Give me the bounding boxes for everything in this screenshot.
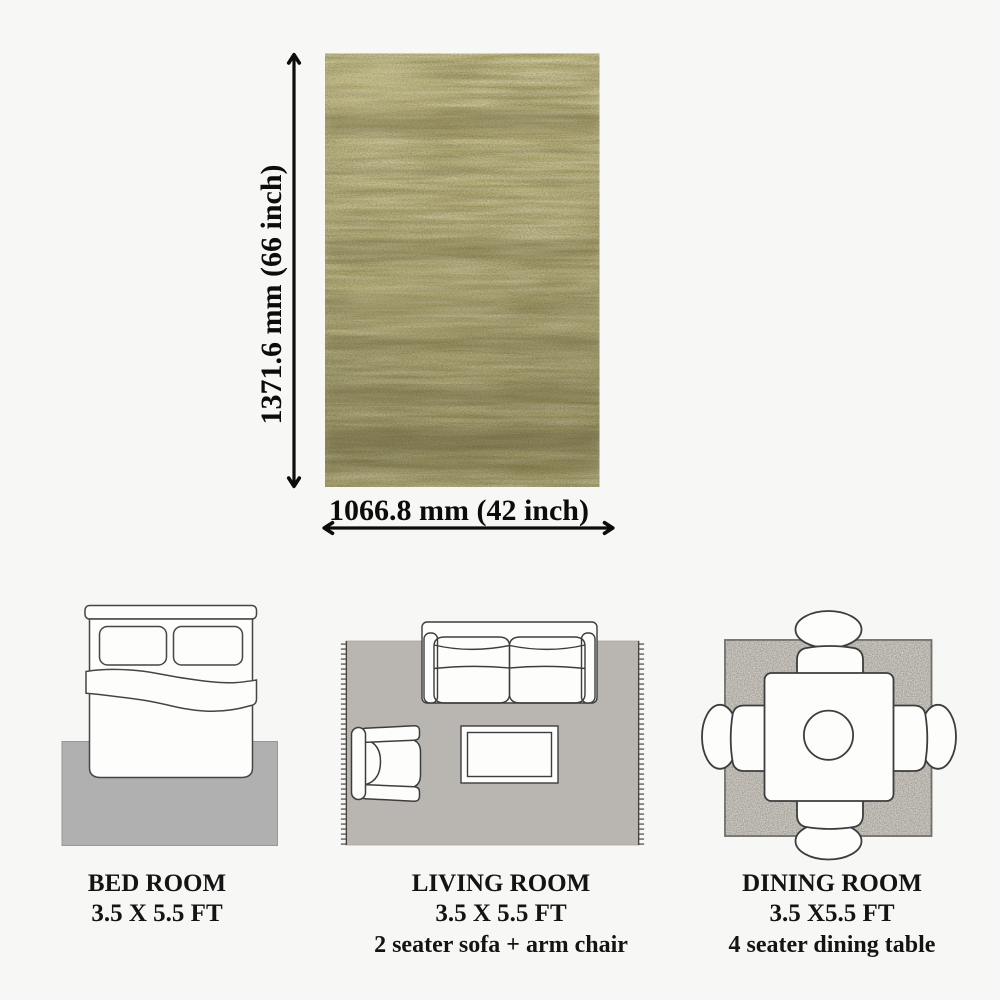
svg-text:3.5 X 5.5 FT: 3.5 X 5.5 FT [435,900,567,927]
svg-text:4 seater dining table: 4 seater dining table [729,932,936,958]
svg-text:3.5 X 5.5 FT: 3.5 X 5.5 FT [91,900,223,927]
svg-text:BED ROOM: BED ROOM [88,870,226,897]
svg-text:1371.6 mm (66 inch): 1371.6 mm (66 inch) [255,165,288,425]
svg-text:LIVING ROOM: LIVING ROOM [412,870,590,897]
svg-text:3.5 X5.5 FT: 3.5 X5.5 FT [770,900,895,927]
svg-text:2 seater sofa + arm chair: 2 seater sofa + arm chair [374,932,628,958]
svg-text:DINING ROOM: DINING ROOM [742,870,922,897]
svg-text:1066.8 mm (42 inch): 1066.8 mm (42 inch) [329,494,589,527]
